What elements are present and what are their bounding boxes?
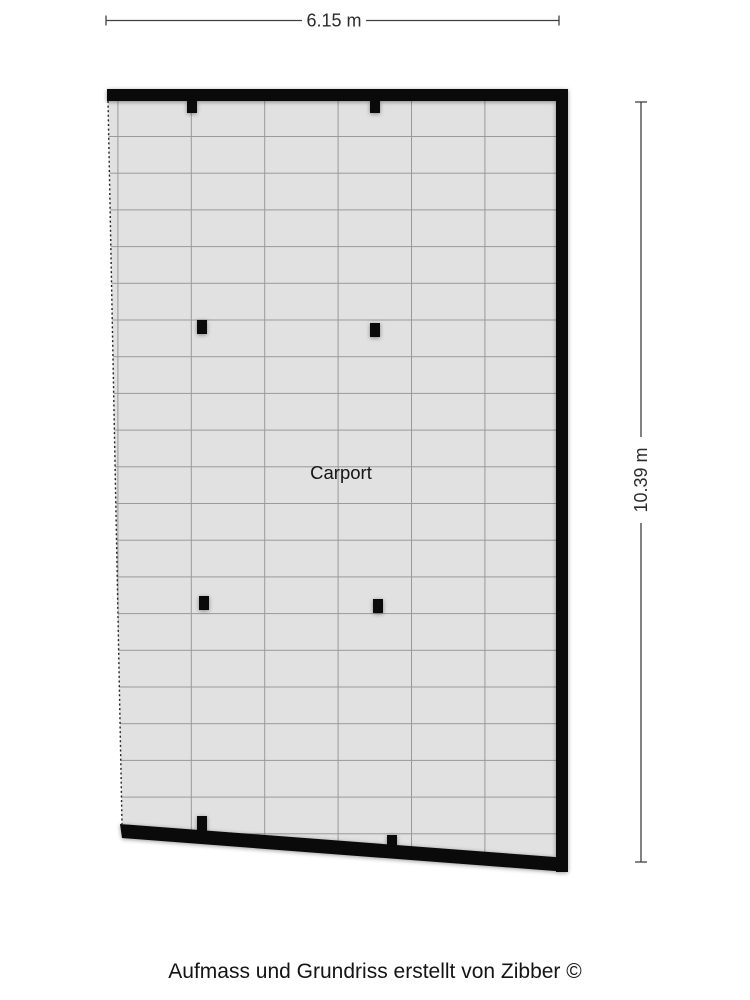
height-dimension-label: 10.39 m (631, 447, 651, 512)
wall-top (107, 89, 568, 101)
post (187, 99, 197, 113)
post (370, 323, 380, 337)
room-label: Carport (310, 462, 372, 483)
top-dimension: 6.15 m (106, 11, 559, 31)
post (370, 99, 380, 113)
post (197, 816, 207, 831)
width-dimension-label: 6.15 m (306, 11, 361, 31)
floorplan-canvas: 6.15 m 10.39 m Carp (0, 0, 750, 1000)
right-dimension: 10.39 m (631, 102, 651, 862)
post (199, 596, 209, 610)
post (197, 320, 207, 334)
footer-credit: Aufmass und Grundriss erstellt von Zibbe… (168, 960, 582, 983)
wall-right (556, 89, 568, 872)
floorplan-page: 6.15 m 10.39 m Carp (0, 0, 750, 1000)
post (373, 599, 383, 613)
post (387, 835, 397, 850)
